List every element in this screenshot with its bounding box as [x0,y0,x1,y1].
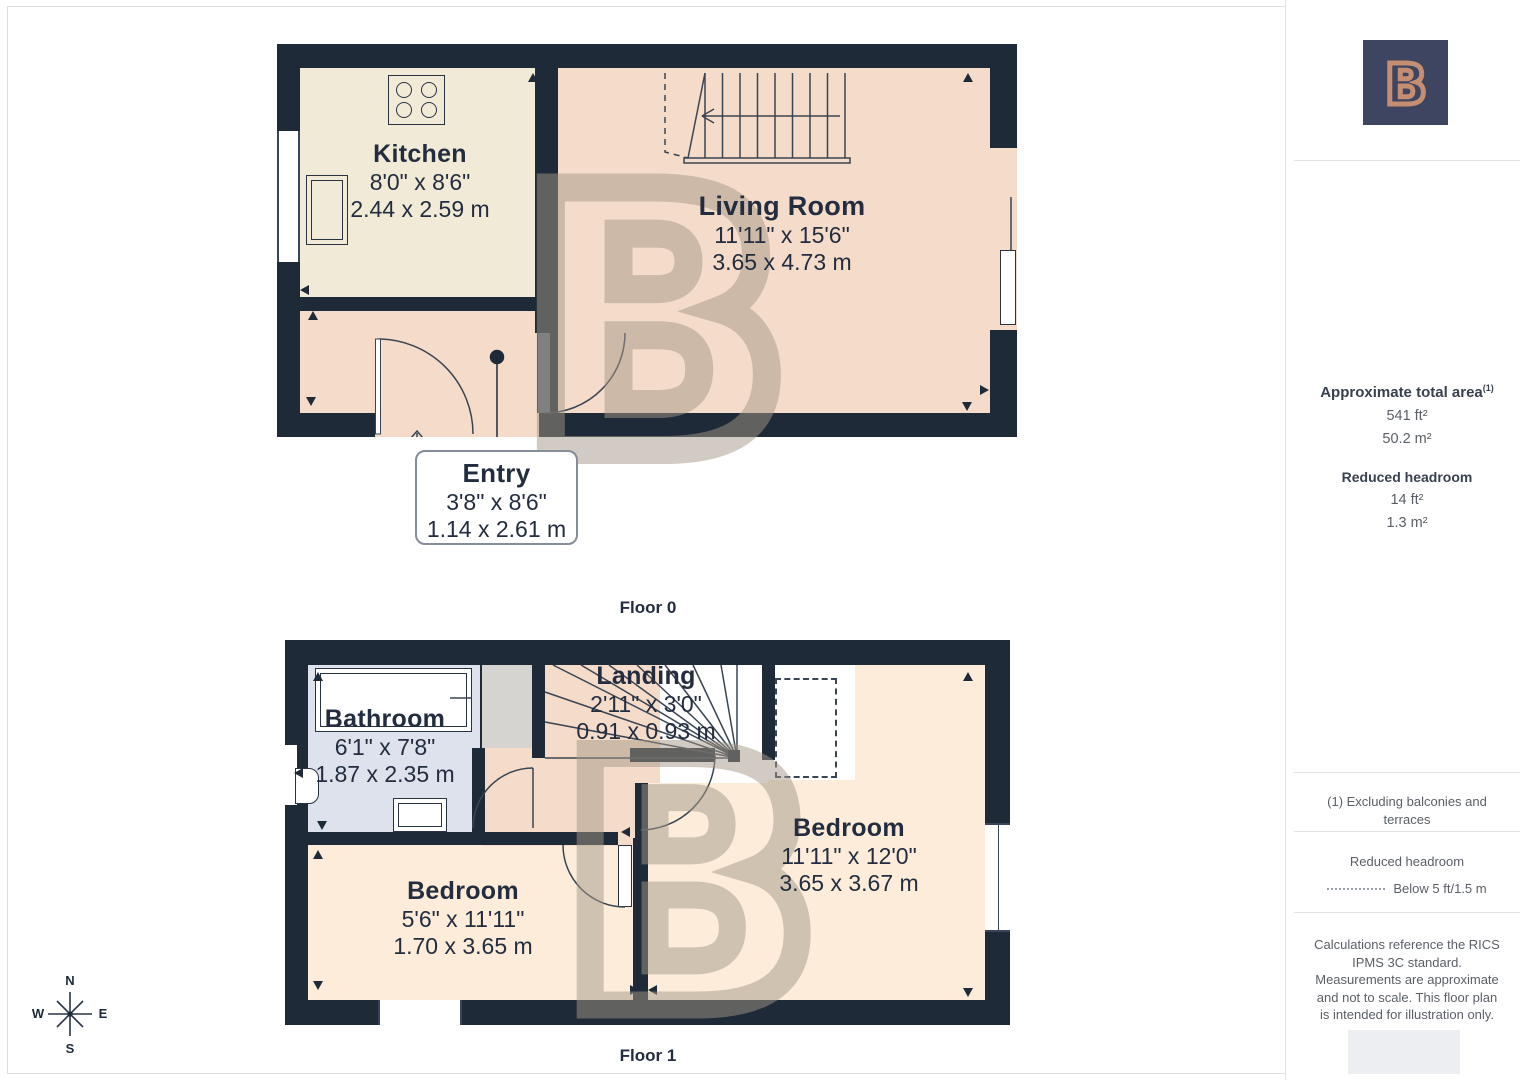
reduced-headroom-area [775,678,837,778]
divider [1294,160,1520,161]
dotted-line-sample [1327,888,1385,891]
floor0-plan: B [277,44,1017,437]
stairs-newel [728,750,740,762]
brand-b-icon: B [1363,40,1448,125]
room-dim-ft: 3'8" x 8'6" [417,489,576,516]
room-dim-m: 1.14 x 2.61 m [417,516,576,543]
compass-w: W [32,1006,45,1021]
area-ft: 541 ft² [1286,408,1527,424]
headroom-title: Reduced headroom [1286,469,1527,485]
floor0-label: Floor 0 [620,598,677,618]
area-title: Approximate total area(1) [1286,383,1527,401]
compass-e: E [99,1006,108,1021]
bathroom-door-arc [473,768,533,828]
excluding-note: (1) Excluding balconies and terraces [1286,793,1527,828]
winder-stairs [545,665,737,758]
living-door-arc [545,333,625,413]
dimension-arrows [294,672,973,997]
headroom-m: 1.3 m² [1286,515,1527,531]
floorplan-page: B Kitchen 8'0" x 8'6" 2.44 x 2.59 m Livi… [0,0,1527,1080]
stairs-dashed-line [665,73,688,158]
floor1-plan: B [285,640,1010,1025]
headroom-ft: 14 ft² [1286,492,1527,508]
area-m: 50.2 m² [1286,431,1527,447]
divider [1294,831,1520,832]
bedroom-left-door-arc [563,845,625,907]
info-sidebar: B Approximate total area(1) 541 ft² 50.2… [1285,0,1527,1080]
footnote-marker: (1) [1483,383,1494,393]
compass-rose: N S W E [28,972,112,1056]
divider [1294,912,1520,913]
floor1-linework [285,640,1010,1025]
compass-n: N [65,973,74,988]
disclaimer: Calculations reference the RICS IPMS 3C … [1286,936,1527,1024]
svg-text:B: B [1385,53,1428,118]
area-summary: Approximate total area(1) 541 ft² 50.2 m… [1286,383,1527,531]
floor0-linework [277,44,1017,437]
front-door-leaf [376,339,381,434]
entry-callout: Entry 3'8" x 8'6" 1.14 x 2.61 m [415,450,578,545]
brand-logo: B [1363,40,1448,125]
entry-direction-arrow [405,431,429,437]
legend-text: Below 5 ft/1.5 m [1393,881,1486,896]
floor1-label: Floor 1 [620,1046,677,1066]
bedroom-right-door-arc [640,755,715,830]
room-name: Entry [417,458,576,489]
legend: Reduced headroom Below 5 ft/1.5 m [1286,853,1527,897]
front-door-arc [378,339,473,434]
dimension-arrows [300,73,989,411]
stairs-rail [684,158,850,163]
legend-title: Reduced headroom [1286,853,1527,871]
compass-s: S [66,1041,75,1056]
sidebar-watermark [1348,1030,1460,1074]
divider [1294,772,1520,773]
legend-row: Below 5 ft/1.5 m [1286,880,1527,898]
